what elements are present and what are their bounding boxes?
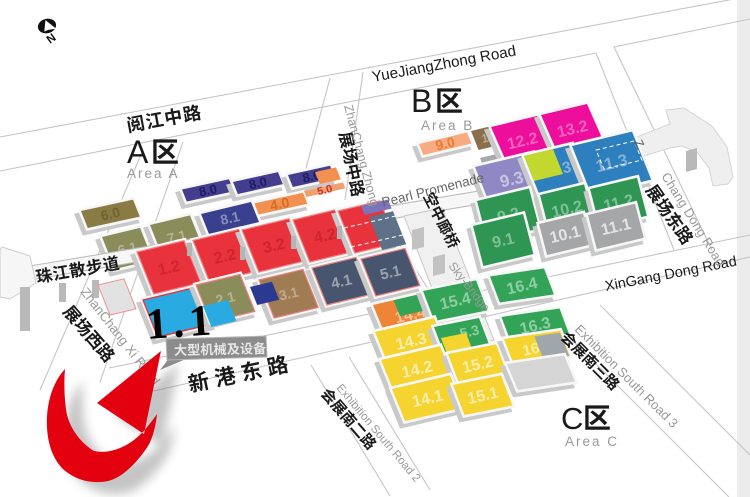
- svg-text:Area C: Area C: [565, 434, 619, 449]
- svg-text:Area B: Area B: [421, 118, 474, 133]
- svg-text:A: A: [127, 134, 149, 170]
- svg-text:1.1: 1.1: [144, 295, 217, 349]
- svg-text:B: B: [411, 83, 432, 119]
- svg-text:C: C: [561, 401, 583, 436]
- svg-text:Area A: Area A: [127, 166, 180, 181]
